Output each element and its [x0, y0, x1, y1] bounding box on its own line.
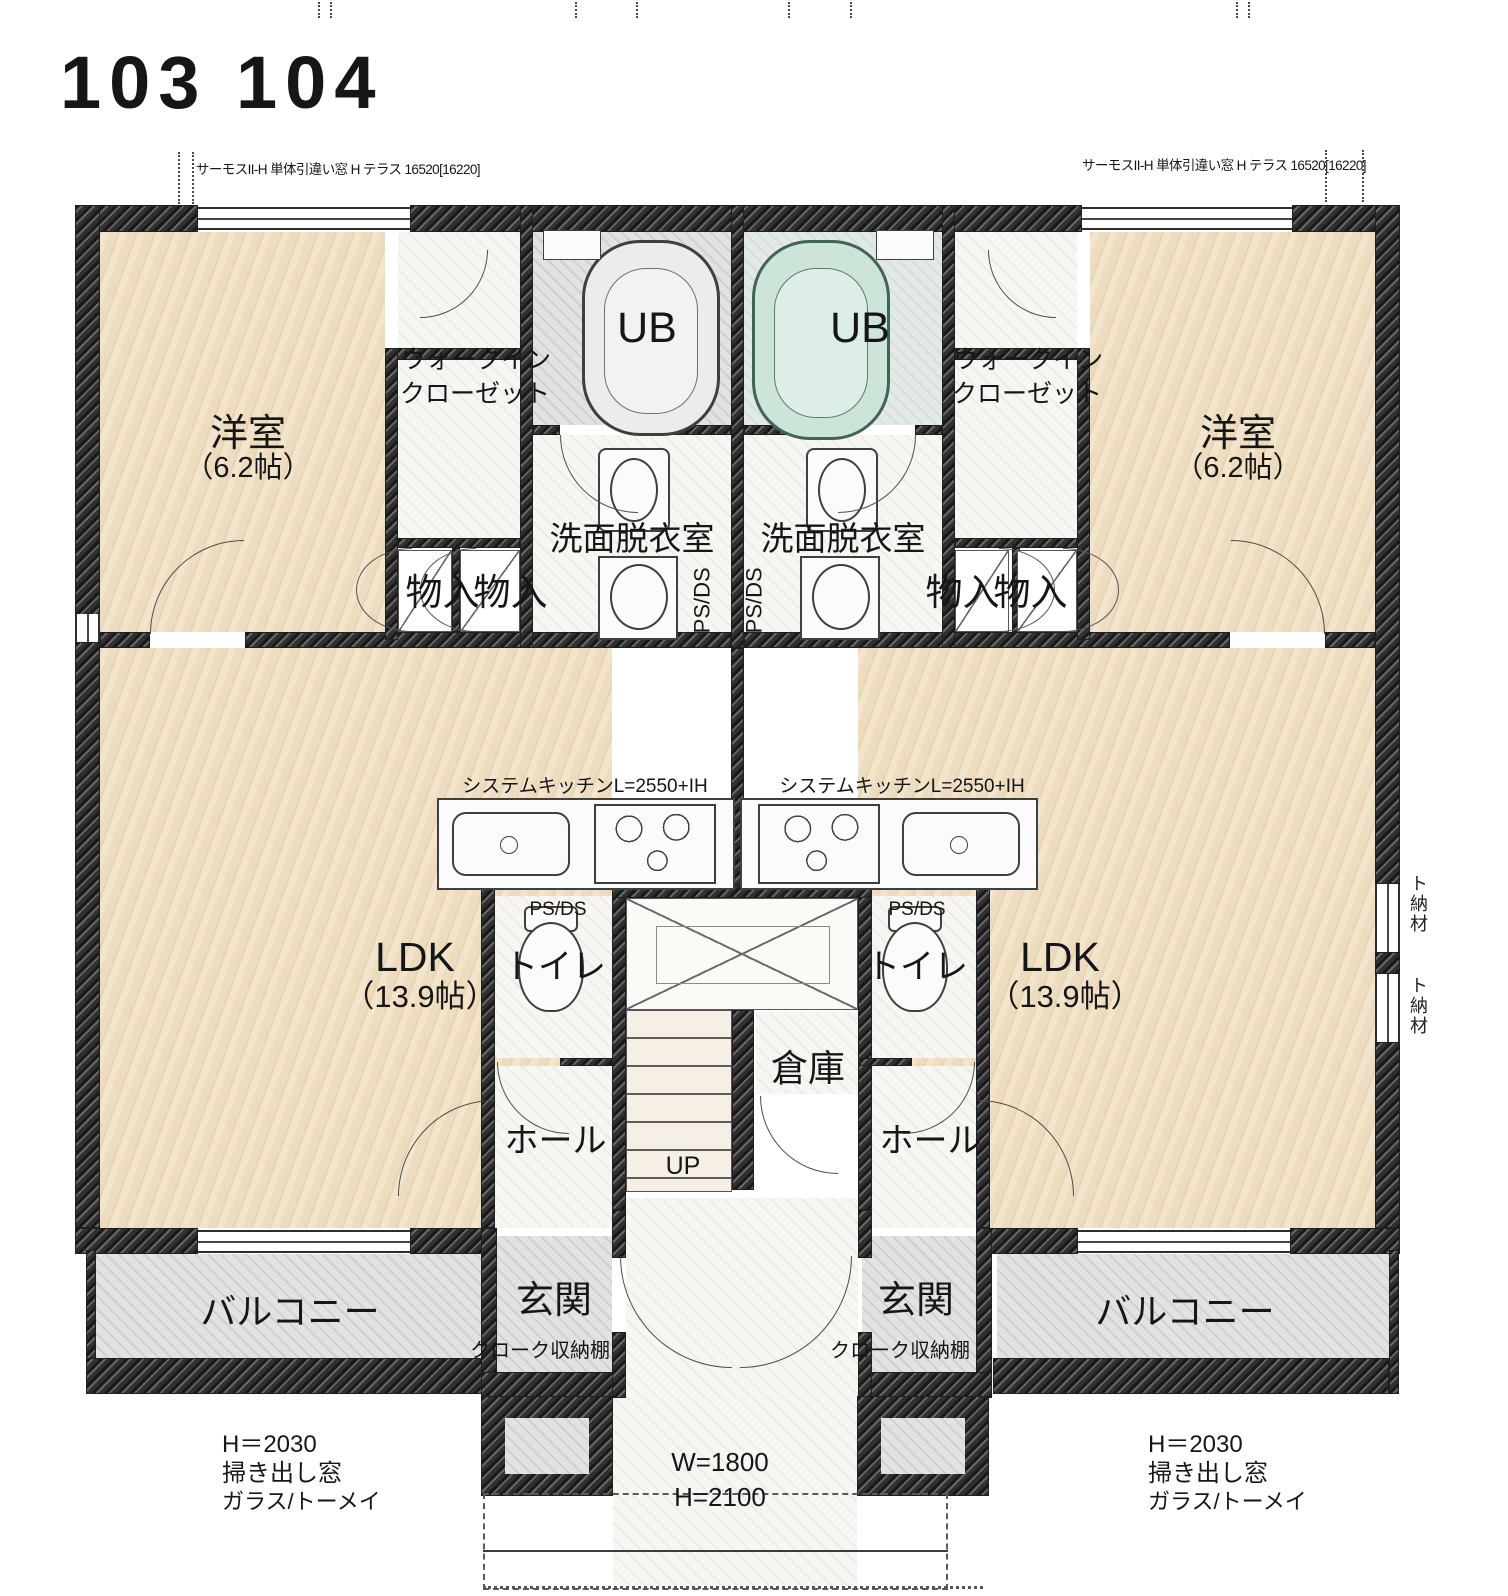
hall-right-label: ホール [868, 1122, 993, 1160]
window [1078, 1230, 1290, 1253]
tick-mark [850, 2, 852, 18]
door-arc [760, 1096, 838, 1174]
edge-note-upper: ト納材 [1405, 874, 1431, 970]
wic-right-label-line1: ウォークイン [948, 346, 1108, 374]
kitchen-left-label: システムキッチンL=2550+IH [455, 776, 715, 797]
entrance-right-label: 玄関 [862, 1280, 970, 1323]
cloak-left-label: クローク収納棚 [470, 1340, 610, 1362]
tick-mark [318, 2, 320, 18]
ldk-left-label: LDK [320, 935, 510, 981]
window-note-right-line3: ガラス/トーメイ [1148, 1490, 1307, 1515]
wall [75, 642, 100, 1228]
psds-right-label: PS/DS [862, 899, 972, 920]
porch-width-label: W=1800 [640, 1448, 800, 1477]
wall [398, 538, 520, 548]
hall-left-label: ホール [493, 1122, 618, 1160]
wall [410, 1228, 485, 1254]
ldk-right-label: LDK [965, 935, 1155, 981]
up-label: UP [648, 1152, 718, 1180]
floor-plan-103-104: 103 104 サーモスII-H 単体引違い窓 H テラス 16520[1622… [0, 0, 1508, 1596]
window-note-right-line2: 掃き出し窓 [1148, 1461, 1268, 1488]
tick-mark [1362, 150, 1364, 202]
wall [1325, 632, 1375, 648]
window [198, 207, 410, 230]
ldk-left-size: （13.9帖） [310, 980, 530, 1015]
washer-drum-icon [610, 564, 668, 630]
edge-note-lower: ト納材 [1405, 976, 1431, 1072]
tick-mark [1325, 150, 1327, 202]
tick-mark [1236, 2, 1238, 18]
wall [1375, 205, 1400, 884]
bath-counter-icon [543, 230, 601, 260]
tick-mark [575, 2, 577, 18]
window-note-left-line2: 掃き出し窓 [222, 1461, 342, 1488]
window [1375, 884, 1400, 952]
wic-left-label-line2: クローゼット [390, 380, 560, 408]
wall [100, 632, 150, 648]
porch-pillar-core [505, 1418, 589, 1474]
window [75, 614, 100, 644]
wall [533, 425, 560, 435]
porch-height-label: H=2100 [640, 1483, 800, 1512]
porch-pillar-core [881, 1418, 965, 1474]
window [1082, 207, 1294, 230]
bath-counter-icon [876, 230, 934, 260]
window-note-right-line1: H＝2030 [1148, 1432, 1243, 1459]
wall [858, 1210, 872, 1258]
window [1375, 974, 1400, 1042]
tick-mark [330, 2, 332, 18]
wall [858, 1372, 992, 1398]
ldk-right-size: （13.9帖） [955, 980, 1175, 1015]
stove-icon [758, 804, 880, 884]
tick-mark [788, 2, 790, 18]
ub-right-label: UB [800, 304, 920, 352]
porch-step-line [483, 1550, 948, 1552]
wall [1290, 1228, 1400, 1254]
stair-spine-wall [732, 1010, 754, 1190]
storage-left-label-b: 物入 [468, 572, 553, 613]
wall [1375, 1042, 1400, 1228]
psds-left-label: PS/DS [503, 899, 613, 920]
balcony-wall [993, 1358, 1389, 1394]
wall [1375, 952, 1400, 974]
wall [955, 538, 1077, 548]
entrance-left-label: 玄関 [500, 1280, 608, 1323]
wall [612, 1210, 626, 1258]
wall [481, 1372, 616, 1398]
window-note-left-line3: ガラス/トーメイ [222, 1490, 381, 1515]
storage-right-label-b: 物入 [988, 572, 1073, 613]
tick-mark [636, 2, 638, 18]
window [198, 1230, 410, 1253]
warehouse-label: 倉庫 [748, 1048, 868, 1089]
balcony-right-label: バルコニー [1080, 1292, 1290, 1332]
wic-left-label-line1: ウォークイン [396, 346, 556, 374]
bedroom-right-label: 洋室 [1128, 413, 1348, 456]
faucet-icon [500, 836, 518, 854]
wall [858, 884, 872, 1210]
page-title: 103 104 [60, 42, 384, 125]
stove-icon [594, 804, 716, 884]
wall [75, 205, 100, 616]
toilet-right-label: トイレ [862, 948, 972, 986]
wic-right-label-line2: クローゼット [942, 380, 1112, 408]
tick-mark [1248, 2, 1250, 18]
washroom-right-label: 洗面脱衣室 [738, 521, 948, 558]
bedroom-left-label: 洋室 [138, 413, 358, 456]
balcony-wall [1389, 1250, 1399, 1394]
psds-vertical-right-label: PS/DS [743, 545, 768, 655]
balcony-wall [86, 1358, 482, 1394]
cloak-right-label: クローク収納棚 [830, 1340, 970, 1362]
tick-mark [192, 152, 194, 204]
kitchen-right-label: システムキッチンL=2550+IH [772, 776, 1032, 797]
wall [612, 1332, 626, 1398]
bedroom-left-size: （6.2帖） [123, 452, 373, 484]
psds-vertical-left-label: PS/DS [691, 545, 716, 655]
bedroom-right-size: （6.2帖） [1113, 452, 1363, 484]
window-annotation-right: サーモスII-H 単体引違い窓 H テラス 16520[16220] [1082, 158, 1366, 173]
window-note-left-line1: H＝2030 [222, 1432, 317, 1459]
stair-landing-inner [656, 926, 830, 984]
tick-mark [178, 152, 180, 204]
wall [612, 884, 626, 1210]
toilet-left-label: トイレ [500, 948, 610, 986]
porch-dotted-edge [483, 1586, 983, 1589]
wall [915, 425, 942, 435]
balcony-left-label: バルコニー [185, 1292, 395, 1332]
washer-drum-icon [812, 564, 870, 630]
window-annotation-left: サーモスII-H 単体引違い窓 H テラス 16520[16220] [196, 162, 480, 177]
faucet-icon [950, 836, 968, 854]
wall [410, 205, 1082, 232]
ub-left-label: UB [587, 304, 707, 352]
